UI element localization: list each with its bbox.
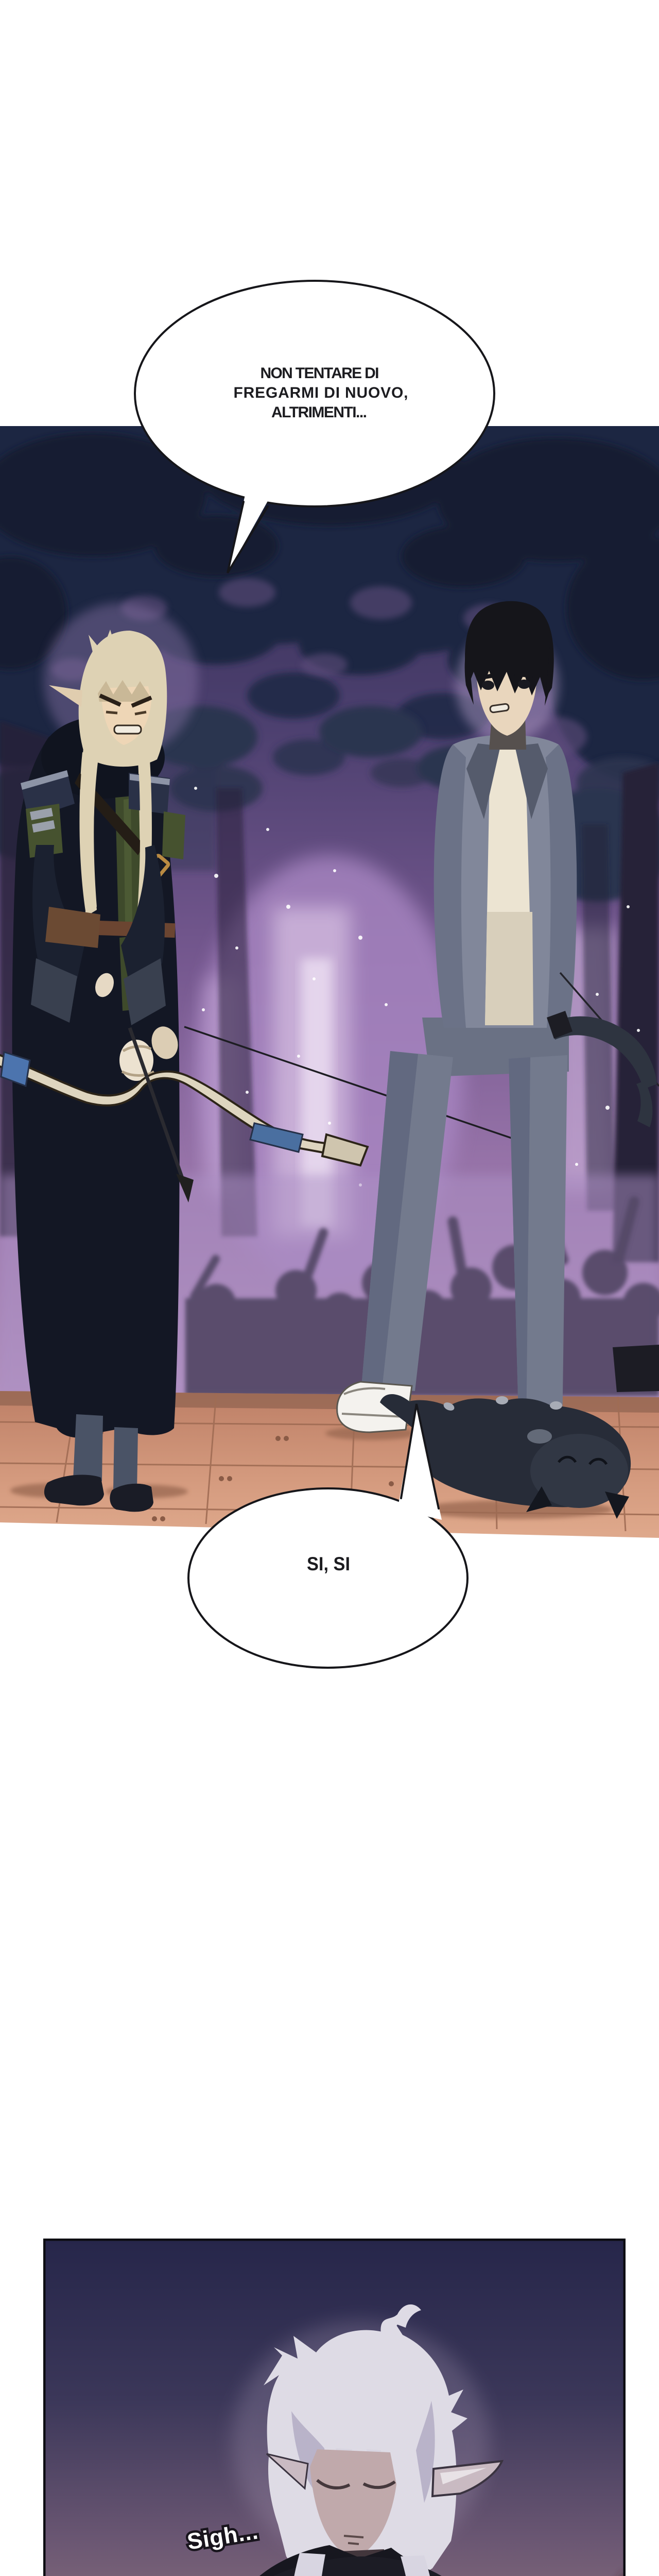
svg-text:NON TENTARE DI: NON TENTARE DI — [261, 365, 379, 382]
svg-text:FREGARMI DI NUOVO,: FREGARMI DI NUOVO, — [234, 384, 408, 401]
svg-text:SI, SI: SI, SI — [307, 1553, 350, 1574]
svg-text:ALTRIMENTI...: ALTRIMENTI... — [271, 404, 367, 421]
